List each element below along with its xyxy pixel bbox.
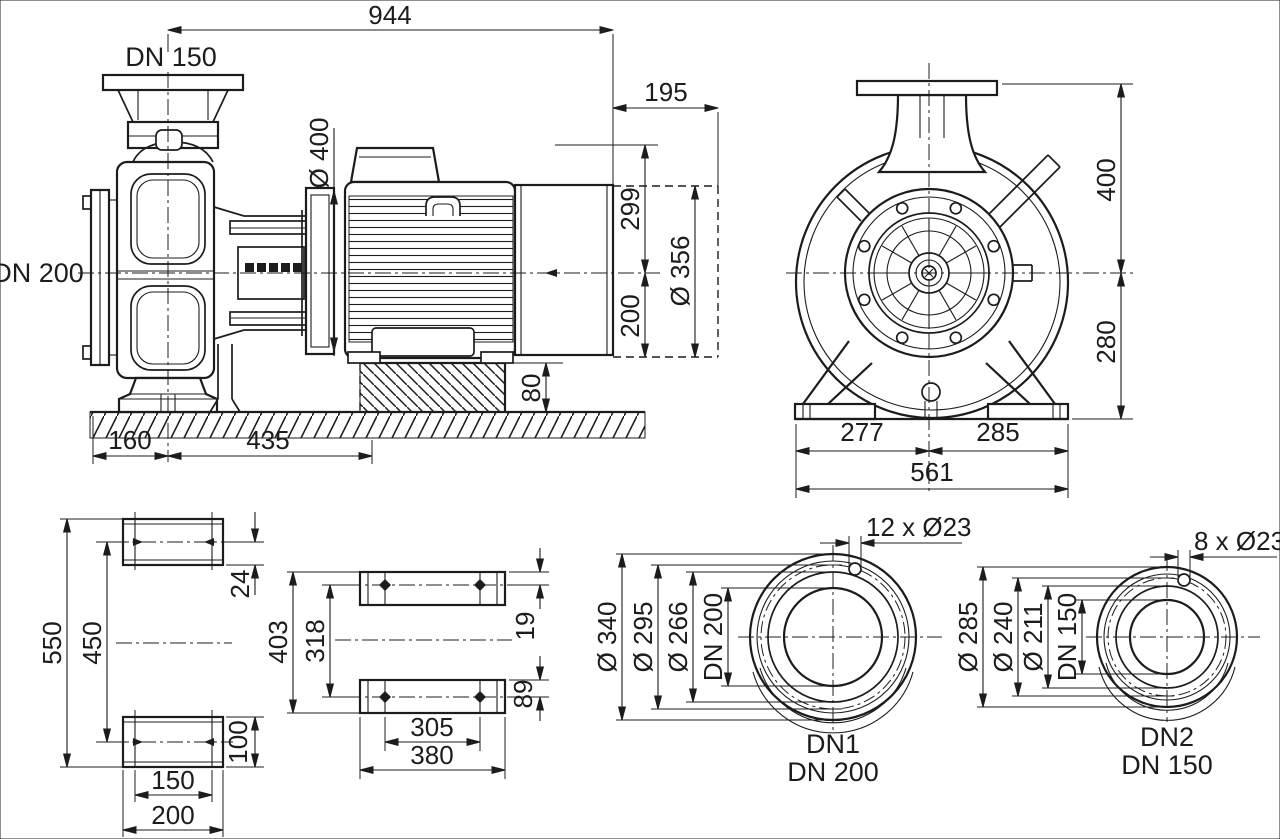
dim-motorfoot-rear: 89 bbox=[508, 680, 538, 709]
dn1-face-dia: Ø 266 bbox=[663, 602, 693, 673]
dn1-bolt-circle-dia: Ø 295 bbox=[628, 602, 658, 673]
dim-foot-overall: 550 bbox=[37, 621, 67, 664]
dim-foot-plate: 100 bbox=[223, 720, 253, 763]
dim-motorfoot-overall: 403 bbox=[263, 620, 293, 663]
dim-fan-diameter: Ø 356 bbox=[665, 236, 695, 307]
dim-end-left: 277 bbox=[840, 417, 883, 447]
dn1-bolt-hole bbox=[849, 563, 861, 575]
dim-foundation-height: 80 bbox=[516, 374, 546, 403]
dn2-name: DN2 bbox=[1140, 722, 1194, 752]
label-suction-dn200: DN 200 bbox=[0, 258, 84, 288]
ground-hatch bbox=[90, 412, 645, 438]
dn1-outer-dia: Ø 340 bbox=[592, 602, 622, 673]
dim-foot-holes: 450 bbox=[77, 621, 107, 664]
dim-suction-to-axis: 160 bbox=[108, 425, 151, 455]
dim-foot-holes-w: 150 bbox=[151, 765, 194, 795]
dn1-name: DN1 bbox=[806, 729, 860, 759]
dn2-bolt-hole bbox=[1178, 574, 1190, 586]
dn2-bore: DN 150 bbox=[1052, 593, 1082, 681]
dn1-size: DN 200 bbox=[787, 757, 879, 787]
dim-foot-edge: 24 bbox=[225, 570, 255, 599]
dim-motorfoot-holes: 318 bbox=[300, 619, 330, 662]
dim-motor-extension: 195 bbox=[644, 77, 687, 107]
motor-fins bbox=[349, 196, 513, 342]
motor-adapter bbox=[306, 188, 334, 354]
dn2-size: DN 150 bbox=[1121, 750, 1213, 780]
dim-end-right: 285 bbox=[976, 417, 1019, 447]
drawing-canvas: 944 195 DN 150 DN 200 Ø 400 299 200 Ø 35… bbox=[0, 0, 1280, 839]
dim-foot-plate-w: 200 bbox=[151, 800, 194, 830]
dn1-bore: DN 200 bbox=[698, 593, 728, 681]
discharge-flange-end bbox=[857, 81, 997, 95]
dim-end-bottom: 280 bbox=[1091, 320, 1121, 363]
dim-end-base: 561 bbox=[910, 457, 953, 487]
pump-dimensional-drawing: 944 195 DN 150 DN 200 Ø 400 299 200 Ø 35… bbox=[0, 0, 1280, 839]
lifting-eye bbox=[426, 197, 460, 216]
dn2-bolt-note: 8 x Ø23 bbox=[1194, 526, 1280, 556]
label-discharge-dn150: DN 150 bbox=[125, 42, 217, 72]
foundation-block-hatch bbox=[360, 363, 505, 412]
dn2-outer-dia: Ø 285 bbox=[953, 602, 983, 673]
dn1-bolt-note: 12 x Ø23 bbox=[866, 512, 972, 542]
terminal-box bbox=[351, 148, 439, 182]
dim-motorfoot-holes-w: 305 bbox=[410, 712, 453, 742]
discharge-flange bbox=[103, 75, 243, 90]
dn2-face-dia: Ø 211 bbox=[1018, 603, 1048, 672]
dim-axis-to-foundation: 435 bbox=[246, 425, 289, 455]
dim-overall-length: 944 bbox=[368, 0, 411, 30]
dim-end-top: 400 bbox=[1091, 158, 1121, 201]
motor-nameplate bbox=[372, 328, 474, 356]
dim-motorfoot-plate-w: 380 bbox=[410, 740, 453, 770]
fan-cowl bbox=[515, 185, 613, 355]
dim-below-axis: 200 bbox=[615, 294, 645, 337]
drain-plug bbox=[922, 383, 940, 401]
dim-above-axis: 299 bbox=[615, 187, 645, 230]
dn2-bolt-circle-dia: Ø 240 bbox=[988, 602, 1018, 673]
dim-motor-diameter: Ø 400 bbox=[304, 118, 334, 189]
dim-motorfoot-front: 19 bbox=[510, 612, 540, 641]
